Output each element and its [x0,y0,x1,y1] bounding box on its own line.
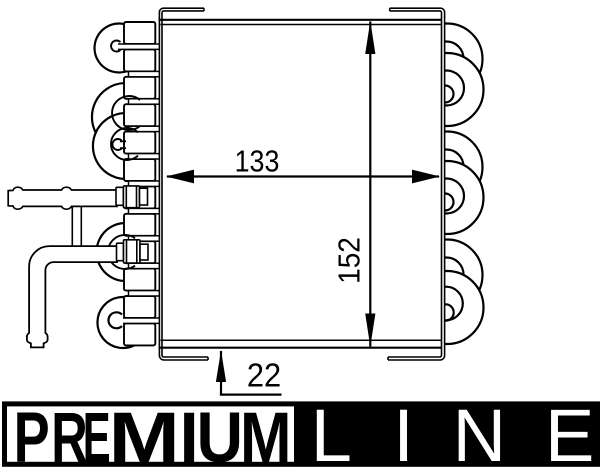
svg-text:E: E [83,399,111,472]
svg-text:22: 22 [247,356,281,393]
svg-text:M: M [109,398,180,472]
svg-text:U: U [197,399,244,472]
svg-text:P: P [14,399,50,472]
svg-text:L: L [311,394,352,472]
svg-text:I: I [393,394,414,472]
svg-text:E: E [545,394,594,472]
svg-text:M: M [240,399,292,472]
svg-text:N: N [453,394,506,472]
svg-text:152: 152 [332,237,366,284]
svg-text:133: 133 [235,145,280,179]
